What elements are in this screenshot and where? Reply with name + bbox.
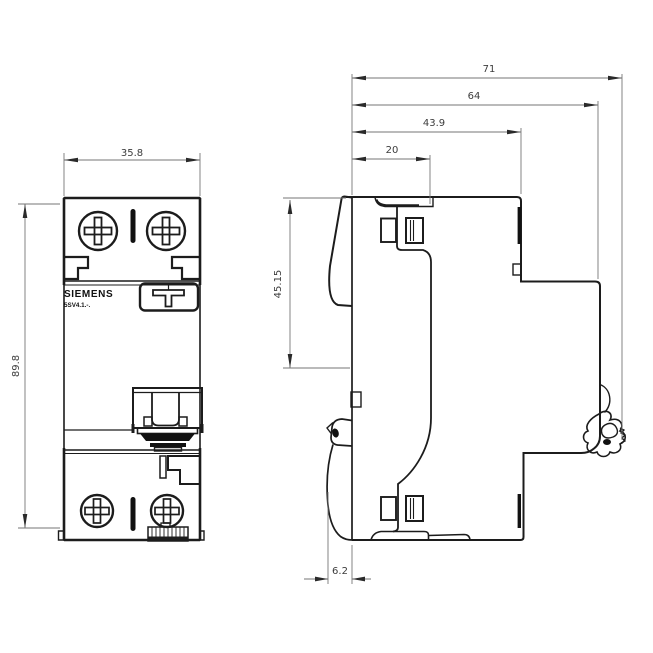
technical-drawing-page: SIEMENS 5SV4.1.-. — [0, 0, 653, 653]
foot-left — [371, 532, 429, 541]
toggle-t-handle — [153, 290, 184, 307]
front-view: SIEMENS 5SV4.1.-. — [59, 198, 205, 541]
dim-front-depth-label: 43.9 — [423, 118, 445, 129]
screw-terminal-top-right — [147, 212, 185, 250]
terminal-block-profile — [393, 207, 431, 532]
clamp-tab-top-right — [172, 257, 200, 279]
dim-rail-offset-label: 6.2 — [332, 566, 348, 577]
din-rail-clip-front — [148, 523, 188, 541]
dim-front-width-label: 35.8 — [121, 148, 143, 159]
siemens-logo: SIEMENS — [64, 289, 113, 300]
bottom-vent-slot — [131, 497, 136, 531]
release-catch — [327, 419, 352, 446]
front-body-outline — [64, 198, 200, 540]
dim-front-height-label: 89.8 — [11, 355, 22, 377]
din-clip-spring — [584, 411, 626, 456]
side-view — [327, 197, 625, 541]
dim-total-depth-label: 71 — [483, 64, 496, 75]
clamp-tab-bottom-right — [168, 456, 200, 484]
dim-face-height-label: 45.15 — [273, 270, 284, 299]
latch-wedge — [140, 434, 195, 442]
clamp-tab-top-left — [64, 257, 88, 279]
terminal-tab-side-top — [381, 219, 396, 243]
dimensional-drawing: SIEMENS 5SV4.1.-. — [0, 0, 653, 653]
screw-terminal-bottom-left — [81, 495, 113, 527]
dim-rail-offset: 6.2 — [304, 566, 371, 581]
screw-terminal-top-left — [79, 212, 117, 250]
toggle-lever-side — [329, 197, 352, 307]
side-body-outline — [345, 197, 600, 540]
back-tab — [513, 264, 521, 275]
top-vent-slot — [131, 209, 136, 243]
terminal-screw-side-bottom — [406, 496, 423, 521]
test-button-mechanism — [133, 388, 202, 451]
lower-slot — [160, 456, 166, 478]
bottom-front-curve — [327, 445, 352, 541]
front-body-bold-edges — [64, 198, 200, 540]
terminal-tab-side-bottom — [381, 497, 396, 520]
dim-step-depth-label: 20 — [386, 145, 399, 156]
terminal-screw-side-top — [406, 218, 423, 243]
toggle-switch — [140, 284, 198, 311]
screw-terminal-bottom-right — [151, 495, 183, 527]
dim-body-depth-label: 64 — [468, 91, 481, 102]
dimension-annotations: 35.8 89.8 71 64 43.9 20 45.15 6.2 — [11, 64, 622, 584]
model-label: 5SV4.1.-. — [64, 302, 91, 309]
rear-arc — [600, 385, 610, 413]
